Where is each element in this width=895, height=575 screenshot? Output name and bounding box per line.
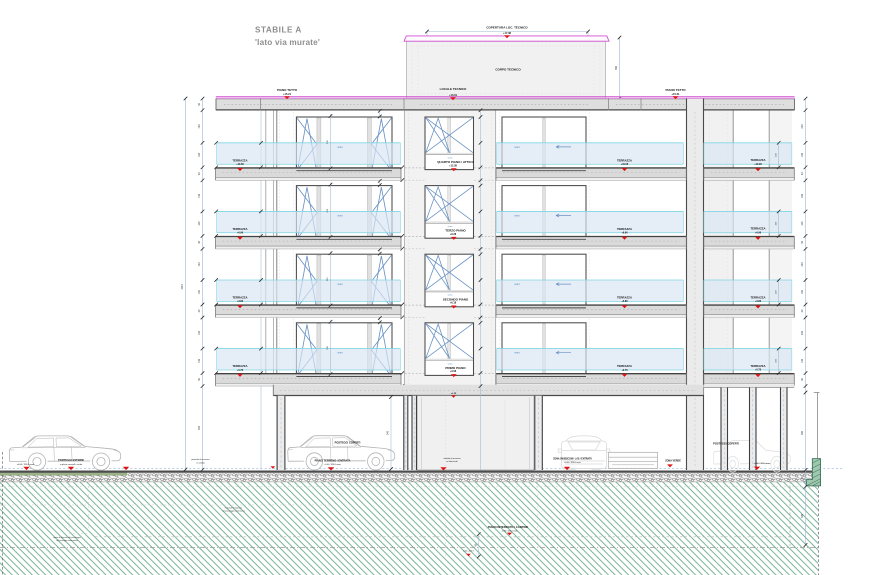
svg-text:TERRAZZA: TERRAZZA <box>617 364 632 368</box>
svg-text:230: 230 <box>801 330 804 335</box>
svg-text:+0.76: +0.76 <box>237 369 244 372</box>
svg-text:PIANO INTERRATO / CANTINE: PIANO INTERRATO / CANTINE <box>488 525 529 529</box>
svg-text:TERRAZZA: TERRAZZA <box>750 158 765 162</box>
svg-text:130: 130 <box>198 330 201 335</box>
svg-text:falda +322.3: falda +322.3 <box>463 550 473 552</box>
svg-text:+13.19: +13.19 <box>449 93 458 97</box>
svg-text:100: 100 <box>198 290 201 295</box>
svg-text:100: 100 <box>801 221 804 226</box>
svg-text:340: 340 <box>387 430 390 435</box>
svg-text:in asfalto: in asfalto <box>196 461 205 464</box>
svg-text:POSTEGGI COPERTI: POSTEGGI COPERTI <box>335 441 361 445</box>
svg-text:100: 100 <box>801 358 804 363</box>
svg-text:PIANO TETTO: PIANO TETTO <box>665 88 686 92</box>
svg-text:TERRAZZA: TERRAZZA <box>750 364 765 368</box>
svg-text:130: 130 <box>198 193 201 198</box>
svg-text:230: 230 <box>801 262 804 267</box>
svg-text:130: 130 <box>198 124 201 129</box>
svg-text:+3.86: +3.86 <box>755 300 762 303</box>
svg-text:+10.06: +10.06 <box>236 163 244 166</box>
svg-text:TERRAZZA: TERRAZZA <box>750 295 765 299</box>
svg-text:±0.00 / 328.0 msm: ±0.00 / 328.0 msm <box>754 463 771 465</box>
svg-text:300: 300 <box>801 430 804 435</box>
svg-text:+0.00 / 328.0 msm: +0.00 / 328.0 msm <box>324 464 341 466</box>
svg-text:100: 100 <box>801 290 804 295</box>
svg-text:+10.06: +10.06 <box>754 163 762 166</box>
svg-text:+0.76: +0.76 <box>755 369 762 372</box>
svg-text:TERRAZZA: TERRAZZA <box>232 296 247 300</box>
svg-text:TERRAZZA: TERRAZZA <box>232 364 247 368</box>
svg-text:+3.86: +3.86 <box>237 300 244 303</box>
svg-text:in ghiaia vermiall e verde: in ghiaia vermiall e verde <box>60 464 83 466</box>
svg-text:vetro: vetro <box>448 225 454 228</box>
svg-text:in blocchetti: in blocchetti <box>447 460 459 463</box>
svg-text:+12.38: +12.38 <box>449 164 457 167</box>
svg-text:+6.96: +6.96 <box>755 232 762 235</box>
svg-text:+0.76: +0.76 <box>621 369 628 372</box>
svg-text:+15.21: +15.21 <box>671 92 680 96</box>
svg-text:PIANO TETTO: PIANO TETTO <box>277 88 298 92</box>
svg-text:-2.80 / 325.2 msm: -2.80 / 325.2 msm <box>501 530 517 532</box>
svg-text:vetro: vetro <box>337 146 343 149</box>
svg-text:ZONA VERDE: ZONA VERDE <box>665 460 681 463</box>
svg-text:PIANO TERRENO / ENTRATA: PIANO TERRENO / ENTRATA <box>315 459 351 463</box>
svg-text:nel parcheggio sotterraneo: nel parcheggio sotterraneo <box>222 509 245 512</box>
svg-text:+10.06: +10.06 <box>621 163 629 166</box>
svg-text:130: 130 <box>198 262 201 267</box>
svg-text:+15.21: +15.21 <box>283 92 292 96</box>
svg-text:230: 230 <box>801 193 804 198</box>
svg-text:vetro: vetro <box>337 283 343 286</box>
svg-text:vetro: vetro <box>448 294 454 297</box>
svg-text:COPERTURA LOC. TECNICO: COPERTURA LOC. TECNICO <box>486 26 528 30</box>
svg-text:vetro: vetro <box>514 214 520 217</box>
svg-text:TERRAZZA: TERRAZZA <box>750 227 765 231</box>
svg-text:TERRAZZA: TERRAZZA <box>617 296 632 300</box>
svg-text:quota di deposito del parchegg: quota di deposito del parcheggio <box>53 536 80 539</box>
svg-text:TERRAZZA: TERRAZZA <box>617 227 632 231</box>
svg-text:ZONA SWISSCOM / LAS / ENTRATA: ZONA SWISSCOM / LAS / ENTRATA <box>553 458 592 461</box>
svg-text:305: 305 <box>801 513 804 518</box>
svg-text:vialetto di accesso: vialetto di accesso <box>444 457 462 460</box>
svg-text:±0.00 / 328.0 msm: ±0.00 / 328.0 msm <box>17 464 34 466</box>
svg-text:1540: 1540 <box>181 284 184 290</box>
svg-text:vetro: vetro <box>448 362 454 365</box>
svg-text:TERRAZZA: TERRAZZA <box>232 227 247 231</box>
svg-text:vetro: vetro <box>337 352 343 355</box>
svg-text:STABILE A: STABILE A <box>255 26 302 35</box>
svg-text:'lato via murate': 'lato via murate' <box>255 38 320 47</box>
svg-text:materiale di deposito: materiale di deposito <box>225 507 242 510</box>
svg-text:POSTEGGI COPERTI: POSTEGGI COPERTI <box>713 442 739 446</box>
svg-text:100: 100 <box>198 152 201 157</box>
svg-text:LOCALE TECNICO: LOCALE TECNICO <box>440 87 467 91</box>
svg-text:vetro: vetro <box>514 352 520 355</box>
svg-text:+1.35: +1.35 <box>451 393 457 395</box>
svg-text:230: 230 <box>801 124 804 129</box>
svg-text:PORTEGGI ESTERNI: PORTEGGI ESTERNI <box>58 458 84 462</box>
svg-text:piazzale di accesso: piazzale di accesso <box>191 459 210 461</box>
svg-text:vetro: vetro <box>337 214 343 217</box>
svg-text:del posteggio sotterraneo: del posteggio sotterraneo <box>56 539 77 542</box>
svg-text:+3.86: +3.86 <box>621 300 628 303</box>
svg-text:vetro: vetro <box>514 146 520 149</box>
svg-text:340: 340 <box>198 425 201 430</box>
svg-text:+6.96: +6.96 <box>621 232 628 235</box>
svg-text:+9.28: +9.28 <box>450 233 457 236</box>
svg-text:100: 100 <box>801 152 804 157</box>
svg-text:CORPO TECNICO: CORPO TECNICO <box>495 68 521 72</box>
svg-text:vetro: vetro <box>448 157 454 160</box>
svg-text:100: 100 <box>198 358 201 363</box>
svg-text:100: 100 <box>198 221 201 226</box>
svg-text:±0.00 / 328.0 msm: ±0.00 / 328.0 msm <box>564 462 581 464</box>
svg-text:+6.18: +6.18 <box>450 302 457 305</box>
svg-text:358: 358 <box>615 65 618 70</box>
svg-text:+3.08: +3.08 <box>450 370 457 373</box>
svg-text:+6.96: +6.96 <box>237 232 244 235</box>
svg-text:TERRAZZA: TERRAZZA <box>617 158 632 162</box>
svg-text:vetro: vetro <box>514 283 520 286</box>
svg-text:TERRAZZA: TERRAZZA <box>232 158 247 162</box>
svg-text:+17.08: +17.08 <box>503 31 512 35</box>
